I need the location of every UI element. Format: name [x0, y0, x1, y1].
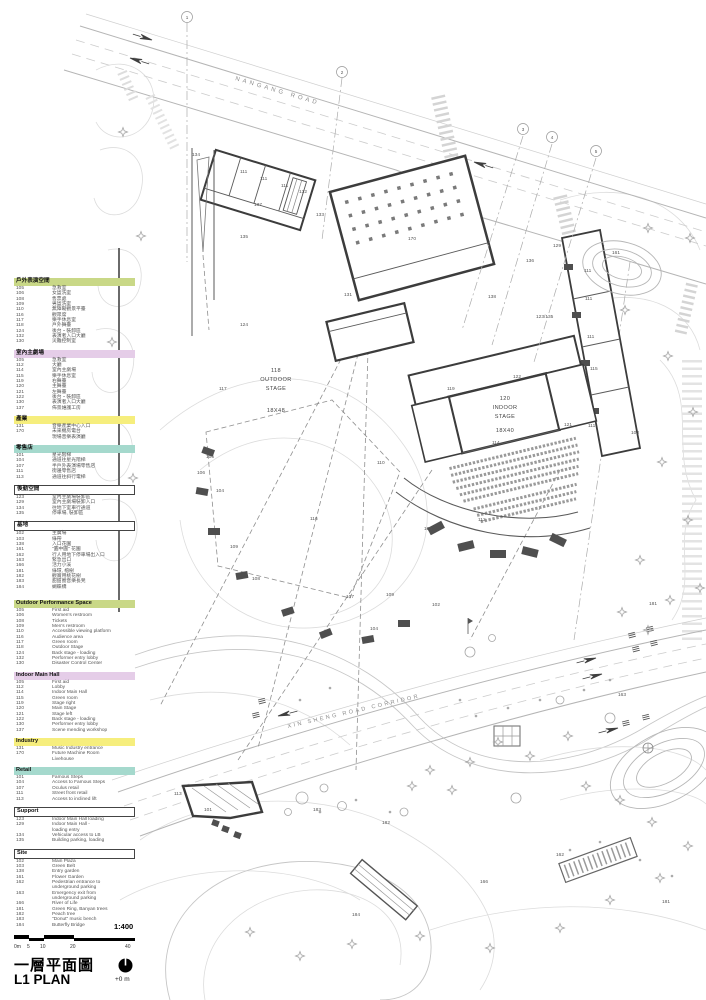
legend-row: 113通道往斜行電梯 [14, 475, 135, 480]
legend-chinese: 戶外表演空間105急救室106女盥洗室108售票處109男盥洗室110無障礙觀景… [14, 278, 135, 595]
plan-room-label: 163 [618, 692, 626, 698]
outdoor-stage-structure [326, 303, 413, 361]
legend-section: Outdoor Performance Space105First aid106… [14, 600, 135, 667]
butterfly-bridge [351, 860, 418, 920]
plan-room-label: 183 [313, 807, 321, 813]
legend-section: 零售店101星光階梯104通道往星光階梯107半戶外表演場零售店111街邊零售店… [14, 445, 135, 480]
tick-10: 10 [40, 944, 46, 950]
plan-room-label: 124 [240, 322, 248, 328]
plan-sheet: NANGANG ROAD XIN SHENG ROAD CORRIDOR [0, 0, 706, 1000]
scale-ticks: 0m 5 10 20 40 [14, 944, 144, 950]
legend-row: 130Disaster Control Center [14, 661, 135, 666]
plan-room-label: 111 [240, 169, 248, 175]
scale-bar [14, 935, 135, 942]
road-label-xinsheng: XIN SHENG ROAD CORRIDOR [287, 694, 421, 730]
grid-bubble-4: 4 [551, 135, 554, 140]
indoor-stage-line2: STAGE [495, 414, 516, 420]
plan-room-label: 119 [447, 386, 455, 392]
parking-ramp [559, 838, 637, 883]
legend-section: Site102Main Plaza103Green Belt138Entry g… [14, 849, 135, 928]
plan-room-label: 111 [585, 296, 593, 302]
plan-room-label: 181 [662, 899, 670, 905]
legend-label: Emergency exit from underground parking [52, 891, 135, 902]
plan-room-label: 133 [316, 212, 324, 218]
legend-section: Industry131Music Industry entrance170Fut… [14, 738, 135, 762]
plan-room-label: 104 [370, 626, 378, 632]
outdoor-stage-line1: OUTDOOR [260, 377, 291, 383]
plan-room-label: 132 [299, 189, 307, 195]
legend-label: 災難控制室 [52, 339, 135, 344]
road-label-nangang: NANGANG ROAD [234, 76, 320, 107]
famous-steps-building [183, 782, 262, 839]
plan-room-label: 129 [553, 243, 561, 249]
legend-section-header: Indoor Main Hall [14, 672, 135, 680]
plan-room-label: 117 [219, 386, 227, 392]
legend-section-header: 產業 [14, 416, 135, 424]
legend-section: Indoor Main Hall105First aid112Lobby114I… [14, 672, 135, 733]
grid-bubble-2: 2 [341, 70, 344, 75]
plan-room-label: 137 [254, 202, 262, 208]
plan-room-label: 106 [197, 470, 205, 476]
legend-code: 170 [14, 429, 52, 440]
legend-code: 113 [14, 797, 52, 802]
tick-0: 0m [14, 944, 21, 950]
legend-label: 停車場, 裝卸區 [52, 511, 135, 516]
legend-section-header: Outdoor Performance Space [14, 600, 135, 608]
legend-code: 184 [14, 585, 52, 590]
grid-bubble-5: 5 [595, 149, 598, 154]
outdoor-stage-code: 118 [271, 368, 281, 374]
plan-room-label: 122 [513, 374, 521, 380]
legend-code: 162 [14, 880, 52, 891]
legend-section: 後勤空間123室內主劇場裝卸區129室內主劇場裝卸入口134往地下室車行通道13… [14, 485, 135, 516]
legend-code: 130 [14, 661, 52, 666]
legend-english: Outdoor Performance Space105First aid106… [14, 600, 135, 933]
level-marker-icon [118, 958, 133, 973]
plan-room-label: 135 [240, 234, 248, 240]
plan-room-label: 161 [612, 250, 620, 256]
flag-marker [468, 618, 473, 634]
legend-code: 129 [14, 822, 52, 833]
plan-room-label: 166 [480, 879, 488, 885]
legend-row: 135停車場, 裝卸區 [14, 511, 135, 516]
legend-label: Access to inclined lift [52, 797, 135, 802]
plan-room-label: 134 [192, 152, 200, 158]
plan-room-label: 102 [432, 602, 440, 608]
legend-section: 室內主劇場105急救室112大廳114室內主劇場115樂手休息室119右舞臺12… [14, 350, 135, 411]
plan-room-label: 138 [488, 294, 496, 300]
legend-label: 通道往斜行電梯 [52, 475, 135, 480]
legend-code: 163 [14, 891, 52, 902]
plan-room-label: 114 [492, 440, 500, 446]
indoor-stage-line1: INDOOR [493, 405, 518, 411]
outdoor-stage-line2: STAGE [266, 386, 287, 392]
plan-room-label: 111 [584, 268, 592, 274]
legend-section-header: Industry [14, 738, 135, 746]
legend-label: Pedestrian entrance to underground parki… [52, 880, 135, 891]
future-machine-room [330, 156, 494, 300]
legend-section-header: 零售店 [14, 445, 135, 453]
legend-section-header: Retail [14, 767, 135, 775]
legend-section: 戶外表演空間105急救室106女盥洗室108售票處109男盥洗室110無障礙觀景… [14, 278, 135, 345]
legend-code: 135 [14, 511, 52, 516]
scale-label: 1:400 [114, 922, 133, 931]
plan-room-label: 182 [382, 820, 390, 826]
legend-row: 170Future Machine Room Livehouse [14, 751, 135, 762]
plan-room-label: 111 [588, 423, 596, 429]
legend-section: 產業131音樂產業中心入口170未來機房電台 現場音樂表演廳 [14, 416, 135, 440]
legend-row: 113Access to inclined lift [14, 797, 135, 802]
plan-room-label: 111 [281, 183, 289, 189]
legend-section-header: 後勤空間 [14, 485, 135, 495]
plaza-kiosks [196, 446, 410, 644]
legend-section-header: 戶外表演空間 [14, 278, 135, 286]
tick-40: 40 [125, 944, 131, 950]
plan-room-label: 105 [424, 526, 432, 532]
legend-section-header: Site [14, 849, 135, 859]
legend-label: 未來機房電台 現場音樂表演廳 [52, 429, 135, 440]
outdoor-stage-dim: 18X48 [267, 408, 285, 414]
legend-row: 162Pedestrian entrance to underground pa… [14, 880, 135, 891]
legend-row: 184蝴蝶橋 [14, 585, 135, 590]
tick-20: 20 [70, 944, 76, 950]
plan-room-label: 107 [346, 594, 354, 600]
grid-bubble-1: 1 [186, 15, 189, 20]
plan-room-label: 111 [587, 334, 595, 340]
plan-room-label: 131 [344, 292, 352, 298]
legend-label: Disaster Control Center [52, 661, 135, 666]
legend-label: 蝴蝶橋 [52, 585, 135, 590]
legend-section: Retail101Famous Steps104Access to Famous… [14, 767, 135, 802]
plan-room-label: 116 [310, 516, 318, 522]
plan-room-label: 104 [216, 488, 224, 494]
grid-bubble-3: 3 [522, 127, 525, 132]
legend-section: 基地102主廣場103綠帶138入口花園161"圓中圓" 花園162行人用地下停… [14, 521, 135, 590]
plan-room-label: 115 [590, 366, 598, 372]
legend-label: Future Machine Room Livehouse [52, 751, 135, 762]
page-title-en: L1 PLAN [14, 972, 70, 987]
plan-room-label: 184 [352, 912, 360, 918]
plan-room-label: 170 [408, 236, 416, 242]
plan-room-label: 108 [252, 576, 260, 582]
plan-room-label: 103 [631, 430, 639, 436]
plan-room-label: 123/135 [536, 314, 554, 320]
legend-row: 137Scene mending workshop [14, 728, 135, 733]
plan-room-label: 113 [174, 791, 182, 797]
legend-section-header: 室內主劇場 [14, 350, 135, 358]
legend-row: 129Indoor Main Hall - loading entry [14, 822, 135, 833]
legend-label: Indoor Main Hall - loading entry [52, 822, 135, 833]
parking-pavilion [494, 726, 520, 746]
indoor-stage-dim: 18X40 [496, 428, 514, 434]
plan-room-label: 105 [206, 454, 214, 460]
plan-room-label: 111 [260, 176, 268, 182]
legend-code: 130 [14, 339, 52, 344]
plan-room-label: 136 [526, 258, 534, 264]
legend-code: 170 [14, 751, 52, 762]
indoor-stage-code: 120 [500, 396, 511, 402]
legend-row: 130災難控制室 [14, 339, 135, 344]
tick-5: 5 [27, 944, 30, 950]
plan-room-label: 112 [478, 517, 486, 523]
plan-room-label: 181 [649, 601, 657, 607]
legend-row: 163Emergency exit from underground parki… [14, 891, 135, 902]
plan-room-label: 121 [564, 422, 572, 428]
legend-row: 135Building parking, loading [14, 838, 135, 843]
plan-room-label: 101 [204, 807, 212, 813]
plan-room-label: 109 [230, 544, 238, 550]
elevation-label: +0 m [115, 976, 130, 983]
legend-row: 137佈景維護工房 [14, 406, 135, 411]
legend-row: 170未來機房電台 現場音樂表演廳 [14, 429, 135, 440]
buildings [183, 148, 640, 920]
legend-code: 137 [14, 406, 52, 411]
plan-room-label: 110 [377, 460, 385, 466]
legend-section-header: 基地 [14, 521, 135, 531]
legend-section-header: Support [14, 807, 135, 817]
plan-room-label: 109 [386, 592, 394, 598]
legend-label: Building parking, loading [52, 838, 135, 843]
title-block: 1:400 0m 5 10 20 40 一層平面圖 L1 PLAN +0 m [14, 922, 164, 997]
legend-code: 113 [14, 475, 52, 480]
legend-code: 135 [14, 838, 52, 843]
legend-code: 137 [14, 728, 52, 733]
legend-label: 佈景維護工房 [52, 406, 135, 411]
legend-label: Scene mending workshop [52, 728, 135, 733]
plan-room-label: 162 [556, 852, 564, 858]
legend-section: Support123Indoor Main Hall loading129Ind… [14, 807, 135, 844]
vomitory-stairs [427, 521, 567, 558]
